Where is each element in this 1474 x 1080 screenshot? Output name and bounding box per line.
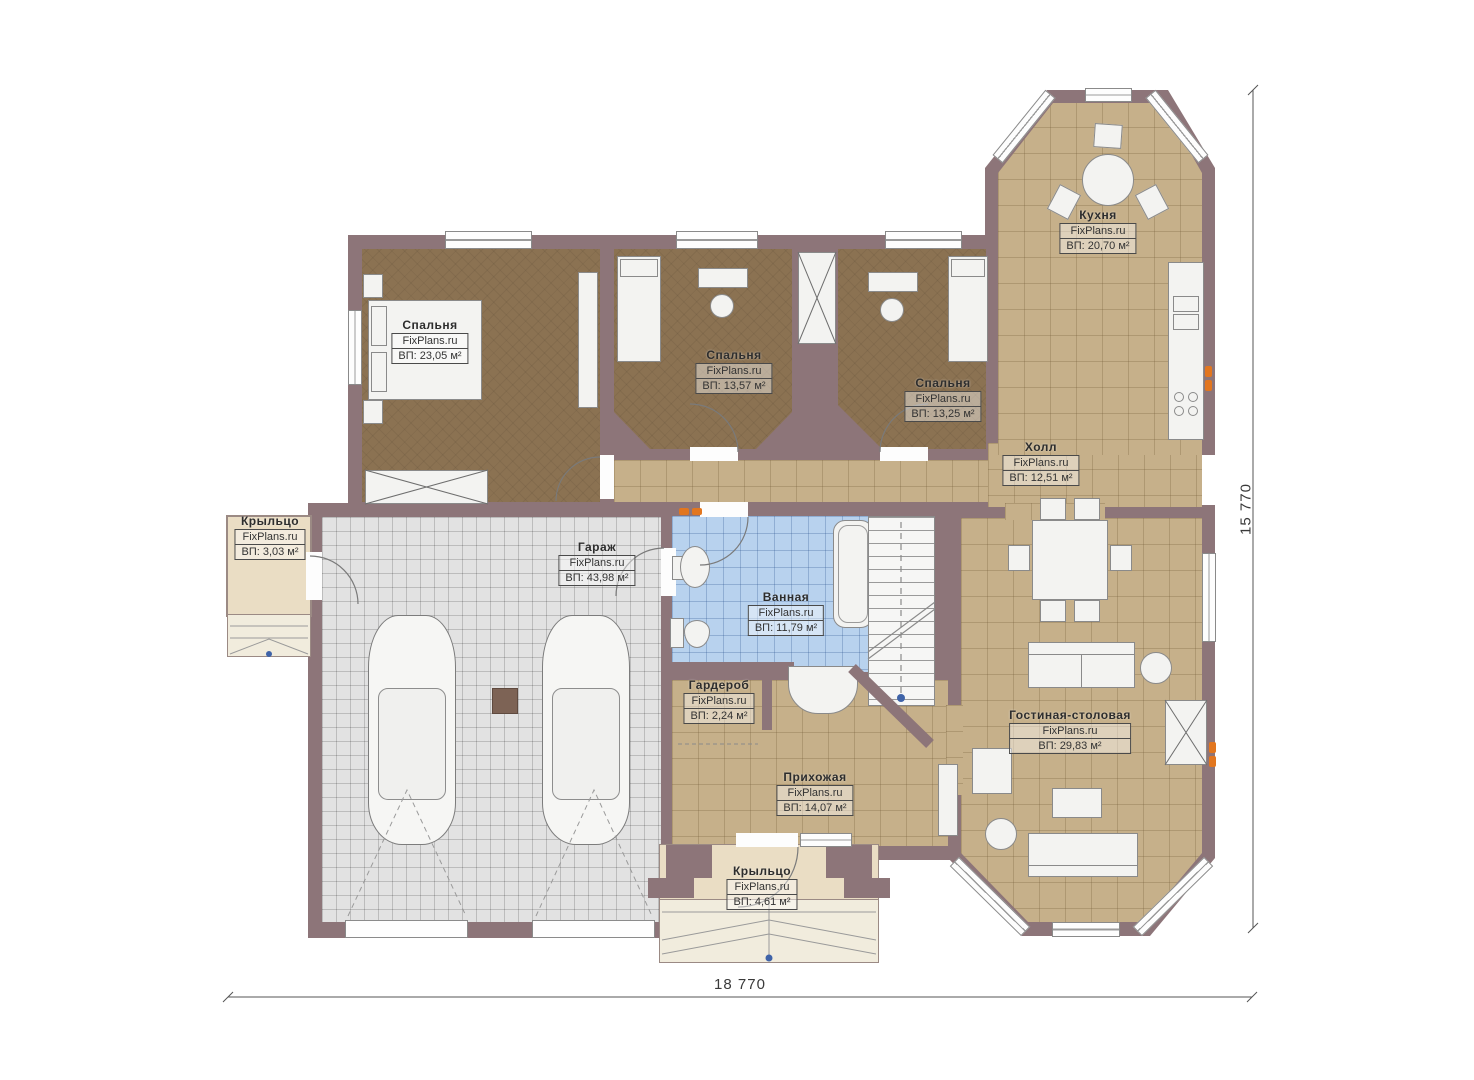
stove-burner [1174, 406, 1184, 416]
room-watermark: FixPlans.ru [558, 555, 635, 571]
window-living-bay-bottom [1052, 922, 1120, 937]
room-name: Крыльцо [726, 864, 797, 878]
floor-corridor [614, 460, 988, 502]
room-label-bedroom-2: Спальня FixPlans.ru ВП: 13,57 м² [695, 348, 772, 394]
room-name: Спальня [904, 376, 981, 390]
kitchen-sink [1173, 314, 1199, 330]
window-living-right [1202, 553, 1216, 642]
radiator-marker [1205, 380, 1212, 391]
nightstand [363, 400, 383, 424]
wall-porch-left-upper [666, 845, 712, 878]
room-area: ВП: 20,70 м² [1059, 239, 1136, 254]
window-kitchen-top [1085, 88, 1132, 102]
room-label-living-dining: Гостиная-столовая FixPlans.ru ВП: 29,83 … [1009, 708, 1131, 754]
room-label-wardrobe: Гардероб FixPlans.ru ВП: 2,24 м² [683, 678, 754, 724]
room-area: ВП: 23,05 м² [391, 349, 468, 364]
door-entrance [736, 833, 798, 847]
desk-chair [880, 298, 904, 322]
floor-plan-canvas: Спальня FixPlans.ru ВП: 23,05 м² Спальня… [0, 0, 1474, 1080]
room-name: Гараж [558, 540, 635, 554]
room-name: Прихожая [776, 770, 853, 784]
room-watermark: FixPlans.ru [391, 333, 468, 349]
dimension-ticks-bottom [223, 992, 1257, 1002]
dining-chair [1040, 498, 1066, 520]
window-bedroom3-top [885, 231, 962, 249]
room-area: ВП: 13,57 м² [695, 379, 772, 394]
armchair [1140, 652, 1172, 684]
dresser-mirror [578, 272, 598, 408]
dining-chair [1040, 600, 1066, 622]
sofa2-back-line [1028, 865, 1138, 866]
sofa-seat-line [1081, 654, 1082, 688]
coffee-table [1052, 788, 1102, 818]
stove-burner [1174, 392, 1184, 402]
bathtub-inner [838, 525, 868, 623]
room-area: ВП: 29,83 м² [1009, 739, 1131, 754]
room-area: ВП: 13,25 м² [904, 407, 981, 422]
room-watermark: FixPlans.ru [776, 785, 853, 801]
garage-column [492, 688, 518, 714]
pillow [371, 352, 387, 392]
wall-porch-right-lower [844, 878, 890, 898]
room-label-porch-bottom: Крыльцо FixPlans.ru ВП: 4,61 м² [726, 864, 797, 910]
kitchen-table [1082, 154, 1134, 206]
steps-porch-left [228, 615, 310, 656]
room-area: ВП: 43,98 м² [558, 571, 635, 586]
door-bedroom2 [690, 447, 738, 461]
door-garage-porch [306, 552, 322, 600]
room-label-bedroom-3: Спальня FixPlans.ru ВП: 13,25 м² [904, 376, 981, 422]
side-table [985, 818, 1017, 850]
room-area: ВП: 12,51 м² [1002, 471, 1079, 486]
dining-chair [1008, 545, 1030, 571]
door-bedroom1 [600, 455, 614, 499]
room-area: ВП: 11,79 м² [748, 621, 824, 636]
nightstand [363, 274, 383, 298]
room-name: Ванная [748, 590, 824, 604]
room-label-hall: Холл FixPlans.ru ВП: 12,51 м² [1002, 440, 1079, 486]
wardrobe-cabinet [365, 470, 488, 504]
shelf-unit [972, 748, 1012, 794]
room-watermark: FixPlans.ru [726, 879, 797, 895]
room-label-porch-left: Крыльцо FixPlans.ru ВП: 3,03 м² [234, 514, 305, 560]
wall-bath-wardrobe [664, 662, 794, 672]
kitchen-counter [1168, 262, 1204, 440]
tv-unit [1165, 700, 1207, 765]
car-roof [552, 688, 620, 800]
room-watermark: FixPlans.ru [748, 605, 824, 621]
room-label-bathroom: Ванная FixPlans.ru ВП: 11,79 м² [748, 590, 824, 636]
desk-chair [710, 294, 734, 318]
room-name: Спальня [695, 348, 772, 362]
room-area: ВП: 14,07 м² [776, 801, 853, 816]
room-name: Гостиная-столовая [1009, 708, 1131, 722]
room-watermark: FixPlans.ru [1009, 723, 1131, 739]
pillow [620, 259, 658, 277]
garage-door-left [345, 920, 468, 938]
room-watermark: FixPlans.ru [1059, 223, 1136, 239]
window-hallway-porch [800, 833, 852, 847]
door-bedroom3 [880, 447, 928, 461]
window-bedroom2-top [676, 231, 758, 249]
room-name: Кухня [1059, 208, 1136, 222]
wall-porch-left-lower [648, 878, 694, 898]
room-name: Гардероб [683, 678, 754, 692]
bathroom-sink [680, 546, 710, 588]
radiator-marker [692, 508, 702, 515]
dining-table [1032, 520, 1108, 600]
room-label-garage: Гараж FixPlans.ru ВП: 43,98 м² [558, 540, 635, 586]
corner-shower [788, 666, 858, 714]
radiator-marker [1209, 742, 1216, 753]
closet-cabinet [798, 252, 836, 344]
room-area: ВП: 2,24 м² [683, 709, 754, 724]
room-watermark: FixPlans.ru [695, 363, 772, 379]
wall-wardrobe-right [762, 672, 772, 730]
dining-chair [1074, 600, 1100, 622]
garage-door-right [532, 920, 655, 938]
room-area: ВП: 3,03 м² [234, 545, 305, 560]
sofa-2 [1028, 833, 1138, 877]
stove-burner [1188, 392, 1198, 402]
pillow [951, 259, 985, 277]
desk [868, 272, 918, 292]
room-watermark: FixPlans.ru [904, 391, 981, 407]
window-bedroom1-top [445, 231, 532, 249]
wall-porch-right-upper [826, 845, 872, 878]
dimension-height-label: 15 770 [1238, 483, 1255, 535]
room-watermark: FixPlans.ru [1002, 455, 1079, 471]
stove-burner [1188, 406, 1198, 416]
room-label-bedroom-1: Спальня FixPlans.ru ВП: 23,05 м² [391, 318, 468, 364]
desk [698, 268, 748, 288]
pillow [371, 306, 387, 346]
room-area: ВП: 4,61 м² [726, 895, 797, 910]
window-bedroom1-left [348, 310, 362, 385]
kitchen-chair [1093, 123, 1123, 149]
room-label-kitchen: Кухня FixPlans.ru ВП: 20,70 м² [1059, 208, 1136, 254]
staircase [868, 516, 935, 706]
room-name: Холл [1002, 440, 1079, 454]
room-name: Крыльцо [234, 514, 305, 528]
radiator-marker [1205, 366, 1212, 377]
dining-chair [1110, 545, 1132, 571]
dining-chair [1074, 498, 1100, 520]
shoe-cabinet [938, 764, 958, 836]
car-roof [378, 688, 446, 800]
room-name: Спальня [391, 318, 468, 332]
radiator-marker [1209, 756, 1216, 767]
door-bathroom [700, 502, 748, 517]
room-label-hallway: Прихожая FixPlans.ru ВП: 14,07 м² [776, 770, 853, 816]
room-watermark: FixPlans.ru [234, 529, 305, 545]
toilet-tank [670, 618, 684, 648]
room-watermark: FixPlans.ru [683, 693, 754, 709]
dimension-width-label: 18 770 [714, 976, 766, 993]
radiator-marker [679, 508, 689, 515]
kitchen-sink [1173, 296, 1199, 312]
